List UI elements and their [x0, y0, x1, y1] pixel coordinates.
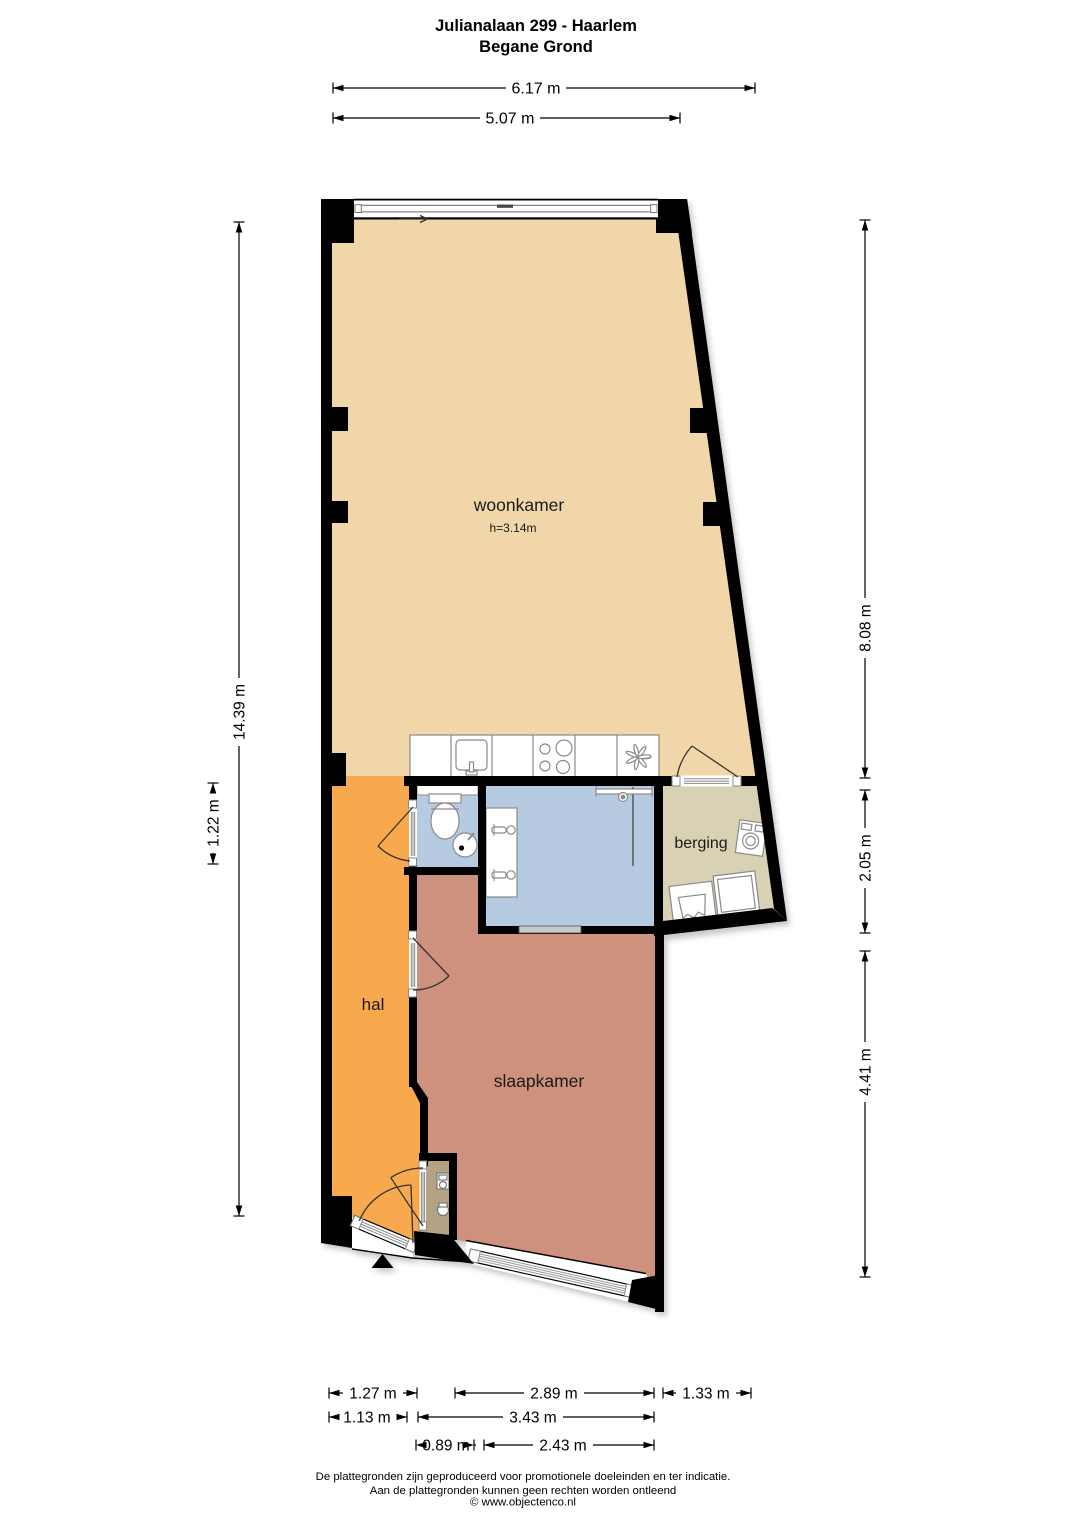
- svg-text:2.43 m: 2.43 m: [539, 1437, 586, 1454]
- svg-text:woonkamer: woonkamer: [473, 495, 565, 515]
- svg-text:5.07 m: 5.07 m: [486, 111, 535, 128]
- svg-text:8.08 m: 8.08 m: [857, 604, 874, 651]
- svg-text:3.43 m: 3.43 m: [509, 1409, 556, 1426]
- svg-text:4.41 m: 4.41 m: [857, 1048, 874, 1095]
- svg-text:h=3.14m: h=3.14m: [489, 521, 536, 535]
- svg-text:1.33 m: 1.33 m: [682, 1385, 729, 1402]
- svg-text:© www.objectenco.nl: © www.objectenco.nl: [470, 1497, 576, 1509]
- svg-text:1.27 m: 1.27 m: [349, 1385, 396, 1402]
- svg-text:Julianalaan 299 - Haarlem: Julianalaan 299 - Haarlem: [435, 17, 637, 35]
- svg-text:14.39 m: 14.39 m: [231, 684, 248, 740]
- svg-text:hal: hal: [362, 995, 385, 1014]
- svg-text:slaapkamer: slaapkamer: [494, 1071, 585, 1091]
- svg-text:1.22 m: 1.22 m: [205, 799, 222, 846]
- svg-text:De plattegronden zijn geproduc: De plattegronden zijn geproduceerd voor …: [316, 1471, 731, 1483]
- svg-text:0.89 m: 0.89 m: [422, 1437, 469, 1454]
- svg-text:Aan de plattegronden kunnen ge: Aan de plattegronden kunnen geen rechten…: [370, 1485, 677, 1497]
- svg-text:berging: berging: [674, 835, 727, 852]
- svg-text:Begane Grond: Begane Grond: [479, 38, 593, 56]
- svg-text:6.17 m: 6.17 m: [512, 81, 561, 98]
- svg-text:2.05 m: 2.05 m: [857, 834, 874, 881]
- svg-text:1.13 m: 1.13 m: [343, 1409, 390, 1426]
- svg-text:2.89 m: 2.89 m: [530, 1385, 577, 1402]
